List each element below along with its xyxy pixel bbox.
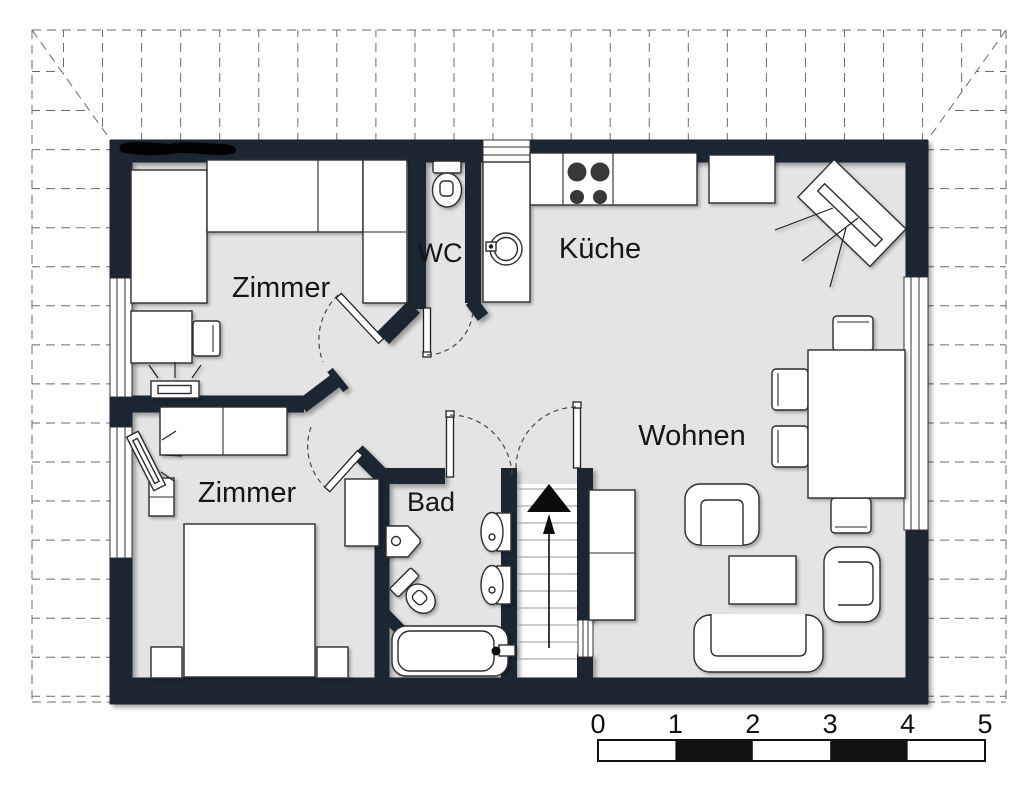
bathtub-icon	[392, 626, 515, 676]
nightstand-icon	[317, 647, 348, 678]
scale-bar-track	[598, 740, 985, 761]
room-label-wohnen: Wohnen	[638, 420, 746, 452]
stairwell-floor	[516, 484, 578, 678]
washbasin-icon	[481, 566, 511, 605]
washbasin-icon	[481, 513, 511, 552]
kitchen-cabinet	[709, 155, 775, 203]
room-label-bad: Bad	[407, 487, 455, 517]
sofa-icon	[694, 614, 823, 672]
chair-icon	[193, 321, 220, 356]
toilet-icon	[433, 161, 462, 207]
chair-icon	[772, 426, 808, 467]
double-bed-icon	[184, 524, 315, 677]
window-top-kitchen	[483, 140, 530, 162]
scale-label-1: 1	[668, 709, 683, 739]
wardrobe-icon	[345, 479, 379, 546]
scale-label-4: 4	[900, 709, 915, 739]
scale-bar-segment-black	[830, 740, 907, 761]
window-left-lower	[110, 427, 132, 558]
scale-label-5: 5	[977, 709, 992, 739]
floor-plan-drawing: Zimmer WC Küche Zimmer Bad Wohnen 0 1 2 …	[0, 0, 1024, 786]
dining-table-icon	[808, 350, 905, 498]
scale-label-2: 2	[745, 709, 760, 739]
closet-icon	[207, 160, 363, 232]
chair-icon	[772, 369, 808, 410]
nightstand-icon	[151, 647, 182, 678]
window-left-upper	[110, 278, 132, 397]
scale-label-3: 3	[823, 709, 838, 739]
sideboard-icon	[589, 490, 635, 620]
desk-icon	[131, 311, 192, 363]
room-label-zimmer-lower: Zimmer	[198, 477, 297, 509]
floor-plan-page: Zimmer WC Küche Zimmer Bad Wohnen 0 1 2 …	[0, 0, 1024, 786]
armchair-icon	[685, 484, 759, 545]
coffee-table-icon	[729, 556, 796, 604]
scale-bar-segment-black	[675, 740, 752, 761]
chair-icon	[831, 498, 871, 533]
room-label-wc: WC	[418, 238, 463, 268]
scale-label-0: 0	[590, 709, 605, 739]
chair-icon	[833, 316, 873, 351]
room-label-zimmer-upper: Zimmer	[232, 272, 331, 304]
wardrobe-icon	[131, 170, 207, 303]
armchair-icon	[824, 547, 880, 622]
kitchen-counter-side	[483, 162, 530, 302]
stairwell-lower-opening	[578, 620, 593, 657]
room-label-kueche: Küche	[559, 233, 641, 265]
window-right	[904, 277, 928, 530]
